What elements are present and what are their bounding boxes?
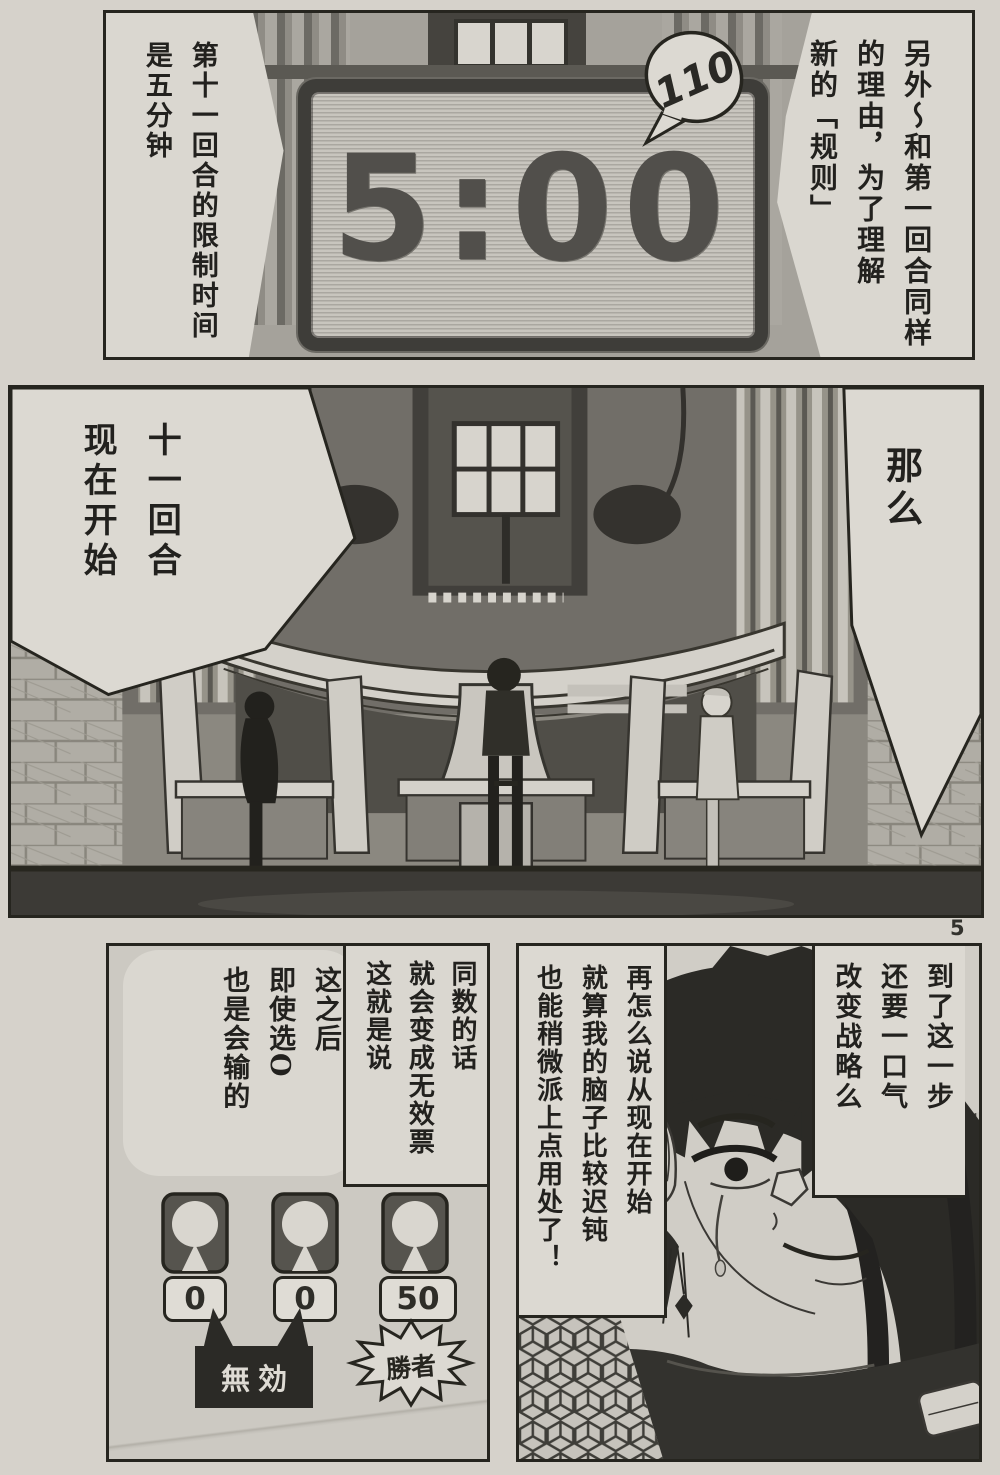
speech-box: 到了这一步 还要一口气 改变战略么 <box>812 946 965 1198</box>
speech-line: 十一回合 <box>141 422 181 722</box>
speech-text-brain-useful: 再怎么说从现在开始 就算我的脑子比较迟钝 也能稍微派上点用处了！ <box>532 964 652 1304</box>
invalid-label: 無効 <box>213 1356 295 1398</box>
speech-text-well-then: 那么 <box>879 446 923 686</box>
desk-edge-lines <box>109 1396 487 1459</box>
pointer-tail-icon <box>203 1308 235 1350</box>
panel-vote-result: 这之后 即使选O 也是会输的 同数的话 就会变成无效票 这就是说 0 0 50 <box>106 943 490 1462</box>
narration-line: 是五分钟 <box>140 41 172 353</box>
speech-line: 改变战略么 <box>829 962 861 1188</box>
sfx-bubble: 110 <box>634 25 752 151</box>
speech-line: 就算我的脑子比较迟钝 <box>577 964 608 1304</box>
manga-page: 5:00 110 第十一回合的限制时间 是五分钟 另外〜和第一回合同样 的理由，… <box>0 0 1000 1475</box>
narration-line: 另外〜和第一回合同样 <box>900 39 933 359</box>
narration-line: 第十一回合的限制时间 <box>186 41 218 353</box>
speech-line: 现在开始 <box>77 422 117 722</box>
panel-arena-scene: 十一回合 现在开始 那么 <box>8 385 984 918</box>
speech-bubble-left-shape <box>11 388 355 695</box>
narration-left: 第十一回合的限制时间 是五分钟 <box>140 41 218 353</box>
speech-text-round-start: 十一回合 现在开始 <box>77 422 181 722</box>
page-number: 5 <box>950 916 965 940</box>
speech-box: 再怎么说从现在开始 就算我的脑子比较迟钝 也能稍微派上点用处了！ <box>519 946 667 1318</box>
panel-clock-scene: 5:00 110 第十一回合的限制时间 是五分钟 另外〜和第一回合同样 的理由，… <box>103 10 975 360</box>
speech-line: 到了这一步 <box>921 962 953 1188</box>
pointer-tail-icon <box>275 1308 309 1350</box>
narration-line: 的理由，为了理解 <box>853 39 886 359</box>
narration-right: 另外〜和第一回合同样 的理由，为了理解 新的「规则」 <box>806 39 933 359</box>
narration-line: 新的「规则」 <box>806 39 839 359</box>
speech-line: 也能稍微派上点用处了！ <box>532 964 563 1304</box>
speech-line: 还要一口气 <box>875 962 907 1188</box>
arena-rail <box>218 65 858 79</box>
winner-label: 勝者 <box>367 1344 456 1387</box>
speech-text-change-strategy: 到了这一步 还要一口气 改变战略么 <box>829 962 953 1188</box>
speech-line: 再怎么说从现在开始 <box>621 964 652 1304</box>
speech-line: 那么 <box>879 446 923 686</box>
panel-character-closeup: 再怎么说从现在开始 就算我的脑子比较迟钝 也能稍微派上点用处了！ 到了这一步 还… <box>516 943 982 1462</box>
